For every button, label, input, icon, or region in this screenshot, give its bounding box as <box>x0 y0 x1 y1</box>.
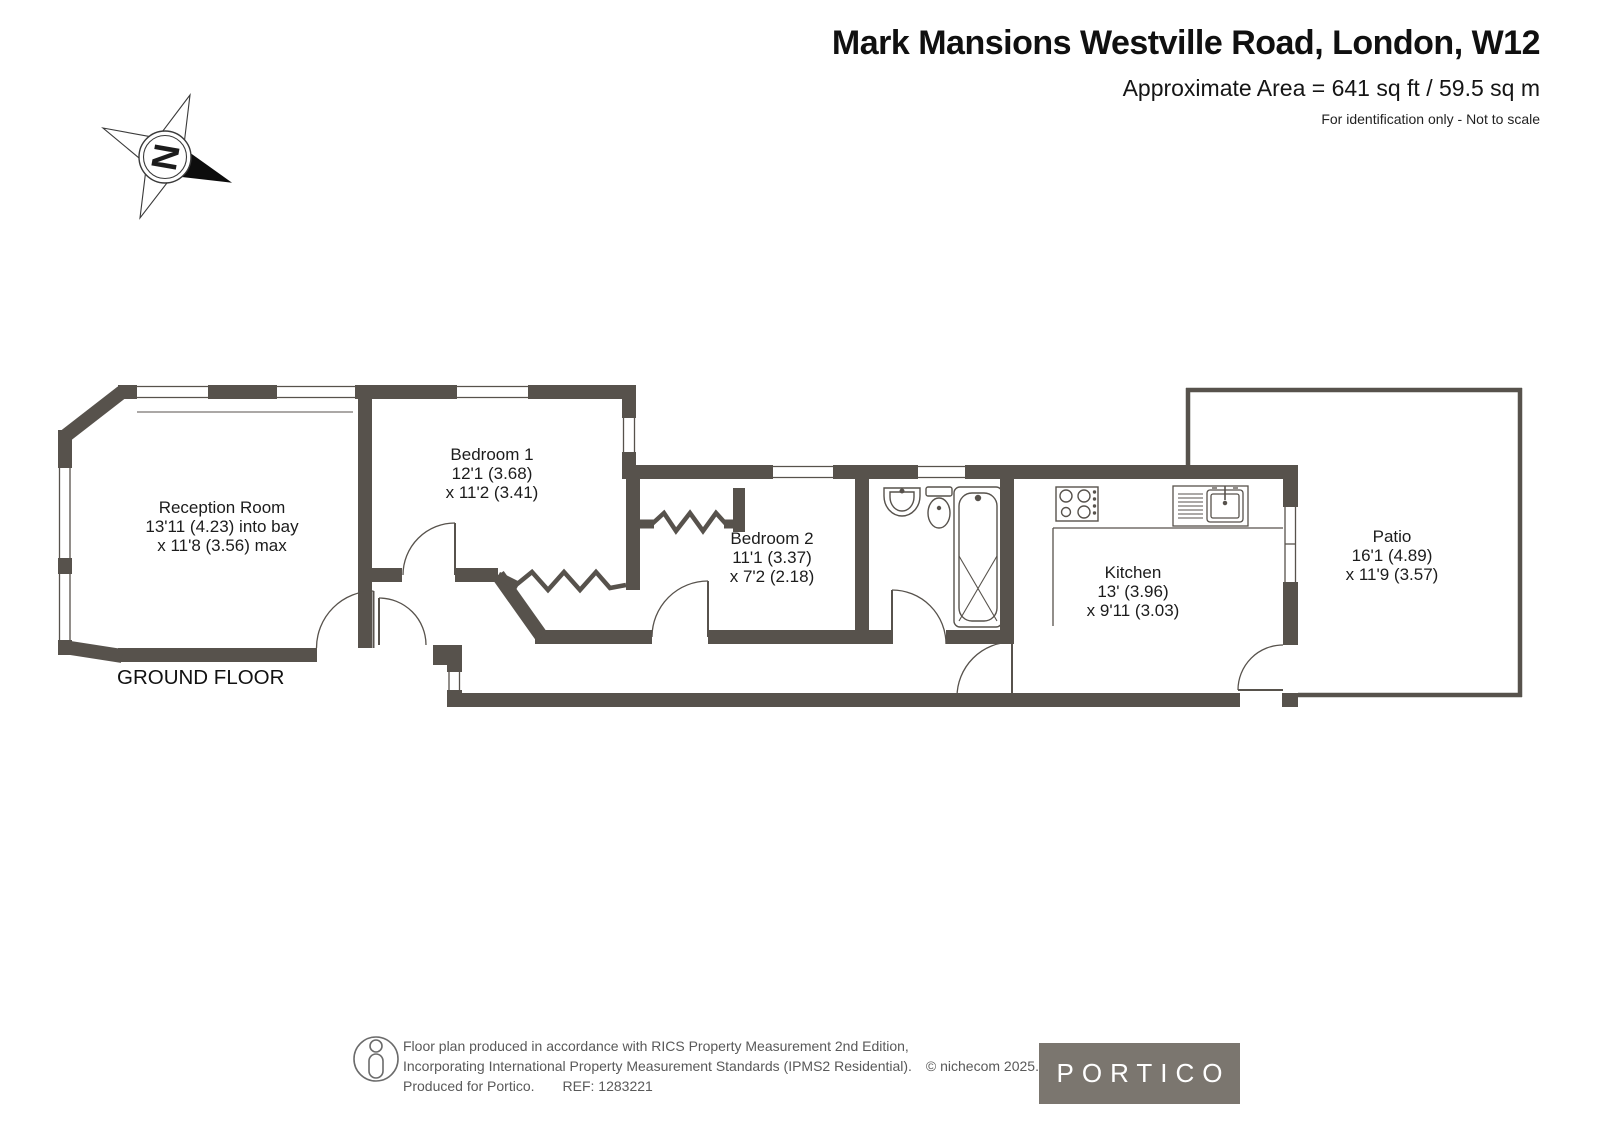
room-label-reception-dim1: 13'11 (4.23) into bay <box>145 517 299 536</box>
room-label-reception-dim2: x 11'8 (3.56) max <box>157 536 287 555</box>
footer-line-2: Incorporating International Property Mea… <box>403 1058 912 1074</box>
kitchen-sink-icon <box>1173 486 1248 526</box>
room-label-bedroom1-dim2: x 11'2 (3.41) <box>446 483 539 502</box>
portico-logo-text: PORTICO <box>1049 1058 1231 1089</box>
room-label-kitchen-name: Kitchen <box>1105 563 1162 582</box>
room-label-bedroom1-dim1: 12'1 (3.68) <box>452 464 533 483</box>
hob-icon <box>1056 487 1098 521</box>
room-label-kitchen-dim2: x 9'11 (3.03) <box>1087 601 1180 620</box>
footer-line-1: Floor plan produced in accordance with R… <box>403 1036 1039 1056</box>
room-label-bedroom2-dim2: x 7'2 (2.18) <box>730 567 815 586</box>
footer-produced: Produced for Portico. <box>403 1078 535 1094</box>
room-label-patio-dim2: x 11'9 (3.57) <box>1346 565 1439 584</box>
ground-floor-label: GROUND FLOOR <box>117 666 284 689</box>
room-label-reception-name: Reception Room <box>159 498 286 517</box>
room-label-bedroom1-name: Bedroom 1 <box>450 445 533 464</box>
patio-walls <box>1186 388 1522 697</box>
floorplan-page: Mark Mansions Westville Road, London, W1… <box>0 0 1599 1131</box>
floor-plan: N <box>0 0 1599 1131</box>
room-label-bedroom2-name: Bedroom 2 <box>730 529 813 548</box>
footer-ref: REF: 1283221 <box>563 1078 653 1094</box>
room-label-patio-name: Patio <box>1373 527 1412 546</box>
bathroom-sink-icon <box>884 488 920 516</box>
footer-disclaimer: Floor plan produced in accordance with R… <box>403 1036 1039 1096</box>
toilet-icon <box>926 487 952 528</box>
walls-diagonal <box>64 392 542 656</box>
portico-logo: PORTICO <box>1039 1043 1240 1104</box>
compass-north-icon: N <box>103 95 230 218</box>
footer-copyright: © nichecom 2025. <box>926 1058 1039 1074</box>
room-label-patio-dim1: 16'1 (4.89) <box>1352 546 1433 565</box>
room-label-kitchen-dim1: 13' (3.96) <box>1097 582 1168 601</box>
person-icon <box>354 1037 398 1081</box>
room-label-bedroom2-dim1: 11'1 (3.37) <box>732 548 811 567</box>
bathtub-icon <box>954 487 1002 627</box>
wardrobe-zigzags <box>498 513 733 590</box>
